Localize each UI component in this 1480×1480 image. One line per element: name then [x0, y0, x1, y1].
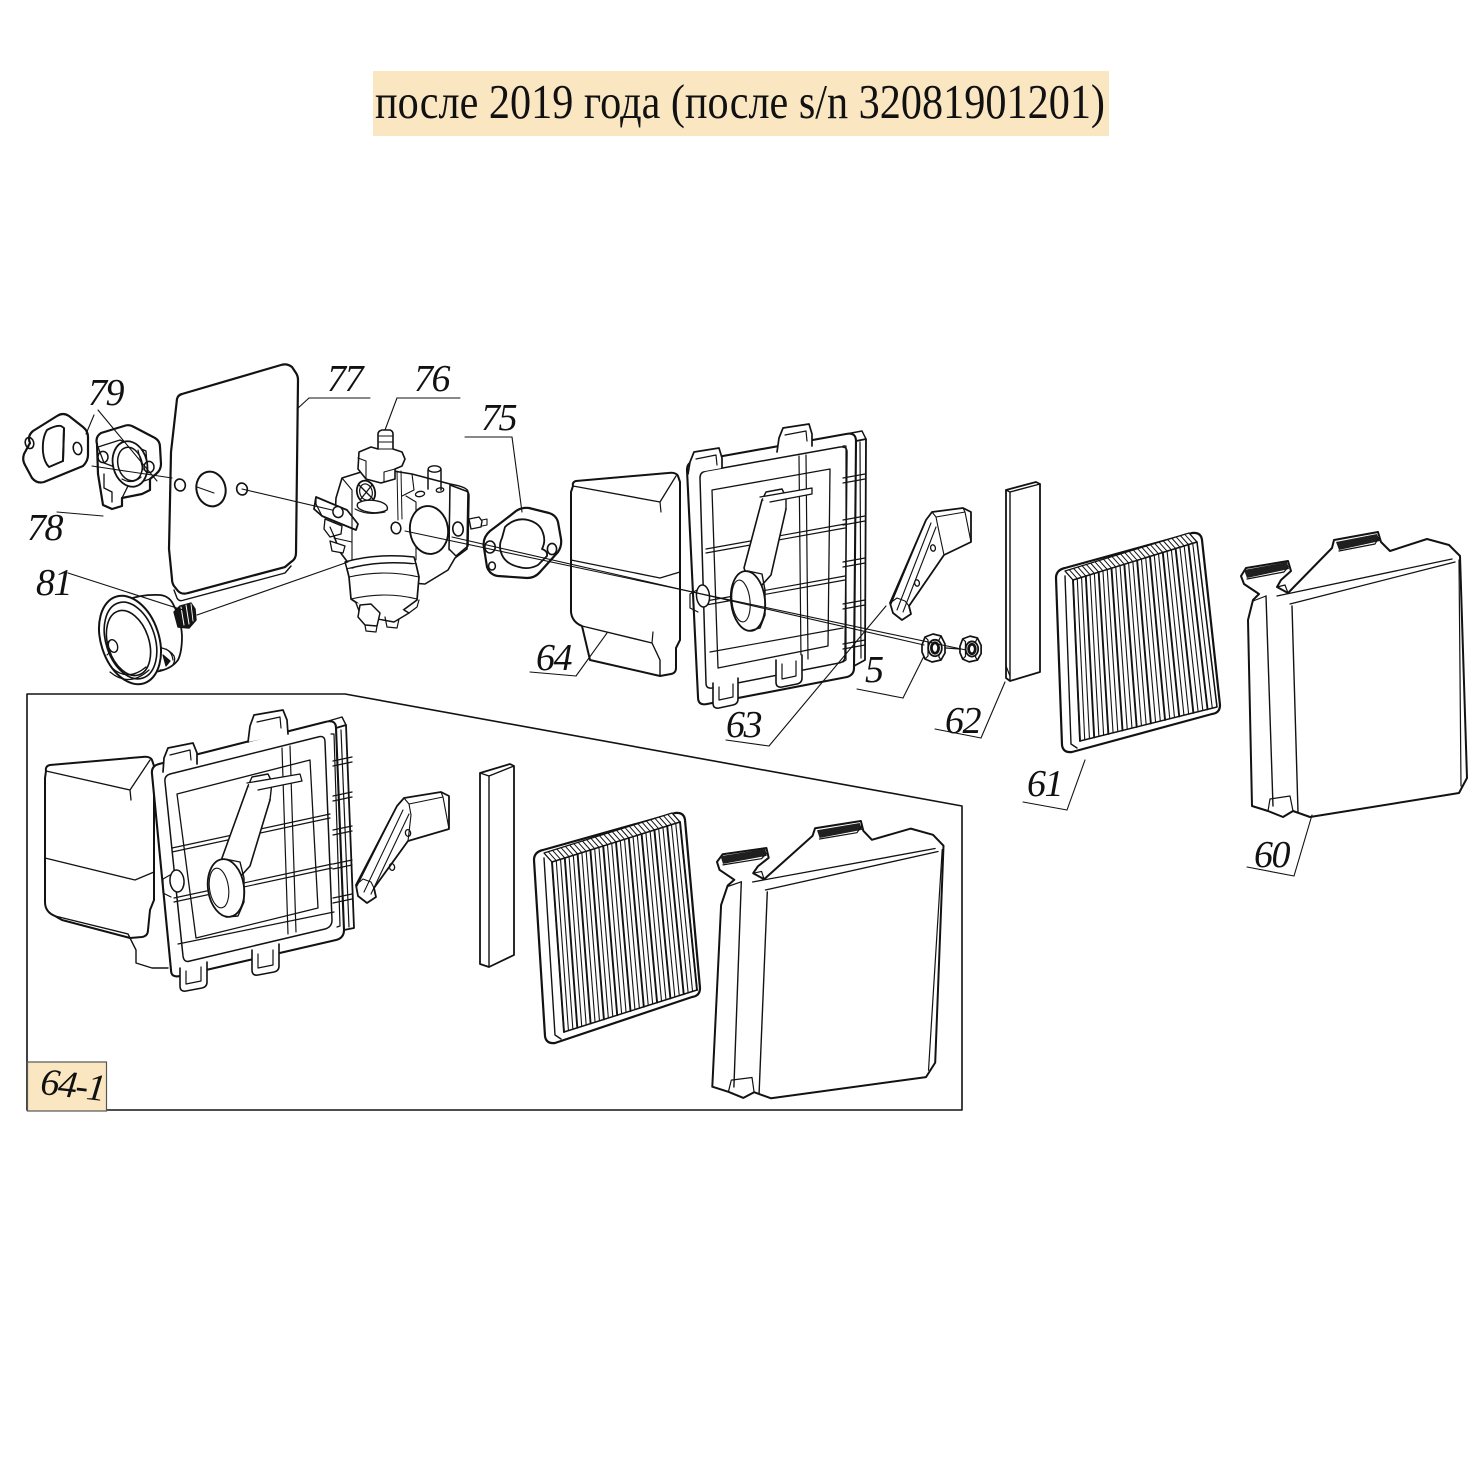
svg-text:76: 76	[414, 358, 451, 400]
svg-text:61: 61	[1027, 763, 1062, 805]
svg-text:64-1: 64-1	[39, 1061, 107, 1110]
svg-text:78: 78	[27, 507, 64, 549]
svg-text:62: 62	[945, 700, 982, 742]
svg-text:5: 5	[865, 649, 883, 691]
svg-text:81: 81	[36, 562, 71, 604]
svg-text:63: 63	[726, 704, 762, 746]
svg-text:79: 79	[88, 372, 125, 414]
svg-text:после 2019 года (после s/n 320: после 2019 года (после s/n 32081901201)	[375, 74, 1105, 129]
svg-text:77: 77	[327, 358, 366, 400]
svg-text:75: 75	[481, 397, 517, 439]
